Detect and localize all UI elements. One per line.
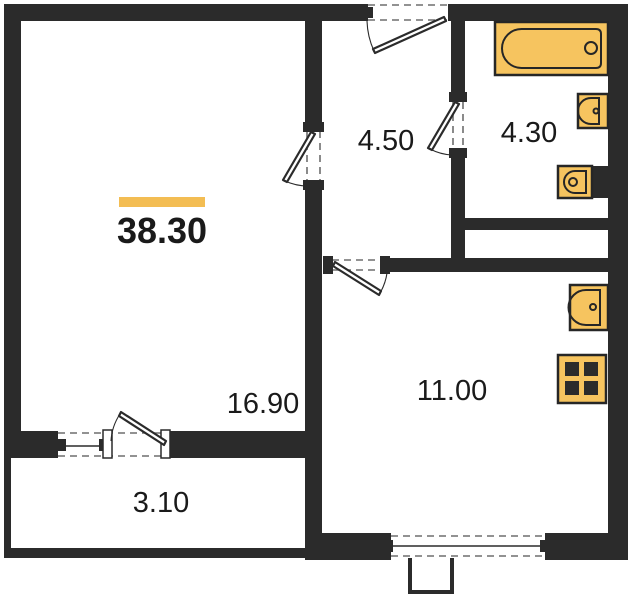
kitchen-sink-body [570, 285, 608, 330]
balcony-door-leaf [119, 412, 166, 445]
wall-bath-divider-upper [451, 21, 465, 92]
living-door-jamb-bottom [303, 180, 324, 190]
bathroom-door-leaf [428, 102, 459, 150]
balcony-area-label: 3.10 [133, 487, 189, 519]
balcony-window-door [55, 412, 170, 458]
living-room-area-label: 16.90 [227, 388, 300, 420]
kitchen-window-stop-right [540, 540, 550, 552]
living-door-jamb-top [303, 122, 324, 132]
kitchen-door-leaf [333, 262, 381, 295]
stove-icon [558, 355, 606, 403]
kitchen-area-label: 11.00 [417, 375, 487, 407]
kitchen-door [323, 256, 390, 295]
stove-burner-1 [565, 362, 579, 376]
bathroom-door [428, 92, 467, 158]
wall-bottom-right-segment [545, 533, 628, 560]
total-area-label: 38.30 [117, 210, 207, 251]
wall-bathroom-bottom [451, 218, 628, 230]
living-room-door [283, 122, 324, 190]
wall-living-divider-upper [305, 21, 322, 123]
walls [4, 4, 628, 560]
labels: 38.30 16.90 4.50 4.30 11.00 3.10 [117, 117, 557, 519]
wall-left [4, 4, 21, 458]
total-area-accent-bar [119, 197, 205, 207]
bathroom-area-label: 4.30 [501, 117, 557, 149]
stove-burner-3 [565, 381, 579, 395]
stove-burner-4 [584, 381, 598, 395]
entry-door-arc [367, 21, 374, 51]
balcony-window-stop-left [55, 439, 66, 451]
bathroom-door-jamb-top [449, 92, 467, 102]
hallway-area-label: 4.50 [358, 125, 414, 157]
kitchen-door-arc [380, 273, 387, 293]
window-sill-outline [410, 558, 452, 592]
floor-plan-canvas: 38.30 16.90 4.50 4.30 11.00 3.10 [0, 0, 631, 600]
kitchen-window [383, 536, 550, 592]
wall-balcony-bottom [4, 548, 310, 558]
wall-balcony-top-right [170, 431, 322, 458]
wall-kitchen-top [390, 258, 628, 272]
kitchen-door-jamb-right [380, 256, 390, 274]
wall-bath-divider-lower [451, 158, 465, 272]
kitchen-sink-icon [569, 285, 609, 330]
floor-plan: 38.30 16.90 4.50 4.30 11.00 3.10 [0, 0, 631, 600]
kitchen-window-stop-left [383, 540, 393, 552]
balcony-door-jamb-left [103, 430, 112, 458]
bathroom-door-jamb-bottom [449, 148, 467, 158]
toilet-icon [558, 166, 608, 198]
wall-top-left [4, 4, 368, 21]
wall-right [608, 4, 628, 560]
entry-jamb [365, 7, 373, 18]
wall-balcony-left [4, 458, 11, 558]
wall-balcony-top-left [4, 431, 58, 458]
stove-burner-2 [584, 362, 598, 376]
bathtub-icon [495, 22, 608, 75]
wall-living-divider-lower [305, 189, 322, 560]
living-door-leaf [283, 132, 315, 182]
wall-top-right [448, 4, 628, 21]
entry-door-leaf [373, 17, 446, 53]
entry-opening-dashes [368, 5, 448, 20]
entry-door [365, 5, 448, 53]
bathroom-sink-icon [578, 94, 608, 128]
wall-bottom-left-segment [305, 533, 391, 560]
kitchen-door-jamb-left [323, 256, 333, 274]
